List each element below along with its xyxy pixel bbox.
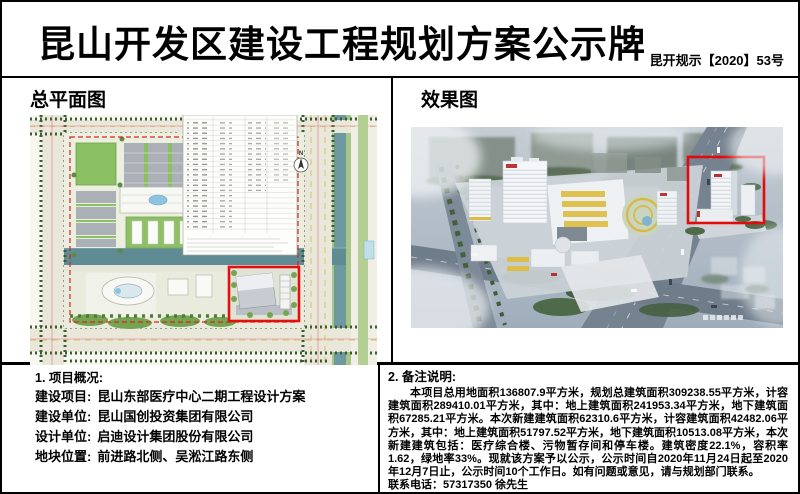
site-plan-title: 总平面图	[30, 85, 391, 112]
overview-value: 启迪设计集团股份有限公司	[97, 429, 253, 444]
overview-item-project: 建设项目:昆山东部医疗中心二期工程设计方案	[35, 387, 370, 407]
page-title: 昆山开发区建设工程规划方案公示牌	[38, 14, 646, 68]
overview-value: 昆山东部医疗中心二期工程设计方案	[97, 389, 305, 404]
plan-highlight-box	[229, 267, 299, 321]
site-plan-svg: N	[30, 115, 377, 365]
remarks-panel: 2. 备注说明: 本项目总用地面积136807.9平方米，规划总建筑面积3092…	[380, 365, 798, 494]
overview-label: 建设单位:	[35, 409, 91, 424]
overview-value: 前进路北侧、吴淞江路东侧	[97, 449, 253, 464]
overview-item-location: 地块位置:前进路北侧、吴淞江路东侧	[35, 447, 370, 467]
overview-label: 建设项目:	[35, 389, 91, 404]
figures-row: 总平面图	[2, 78, 798, 362]
remarks-body: 本项目总用地面积136807.9平方米，规划总建筑面积309238.55平方米，…	[388, 387, 788, 479]
notice-board: 昆山开发区建设工程规划方案公示牌 昆开规示【2020】53号 总平面图	[0, 0, 800, 494]
rendering-figure	[411, 127, 798, 328]
document-number: 昆开规示【2020】53号	[650, 50, 784, 69]
rendering-svg	[411, 127, 783, 328]
project-overview-panel: 1. 项目概况: 建设项目:昆山东部医疗中心二期工程设计方案 建设单位:昆山国创…	[2, 365, 380, 494]
north-label: N	[299, 151, 303, 157]
overview-item-designer: 设计单位:启迪设计集团股份有限公司	[35, 427, 370, 447]
overview-value: 昆山国创投资集团有限公司	[97, 409, 253, 424]
info-row: 1. 项目概况: 建设项目:昆山东部医疗中心二期工程设计方案 建设单位:昆山国创…	[2, 362, 798, 494]
site-plan-panel: 总平面图	[2, 78, 393, 362]
site-plan-figure: N	[30, 115, 391, 365]
overview-label: 地块位置:	[35, 449, 91, 464]
overview-heading: 1. 项目概况:	[35, 370, 370, 387]
rendering-title: 效果图	[421, 85, 798, 112]
contact-line: 联系电话：57317350 徐先生	[388, 479, 788, 492]
remarks-heading: 2. 备注说明:	[388, 369, 788, 386]
overview-item-owner: 建设单位:昆山国创投资集团有限公司	[35, 407, 370, 427]
indicator-table	[183, 115, 297, 255]
rendering-panel: 效果图	[393, 78, 798, 362]
header: 昆山开发区建设工程规划方案公示牌 昆开规示【2020】53号	[2, 2, 798, 78]
overview-label: 设计单位:	[35, 429, 91, 444]
